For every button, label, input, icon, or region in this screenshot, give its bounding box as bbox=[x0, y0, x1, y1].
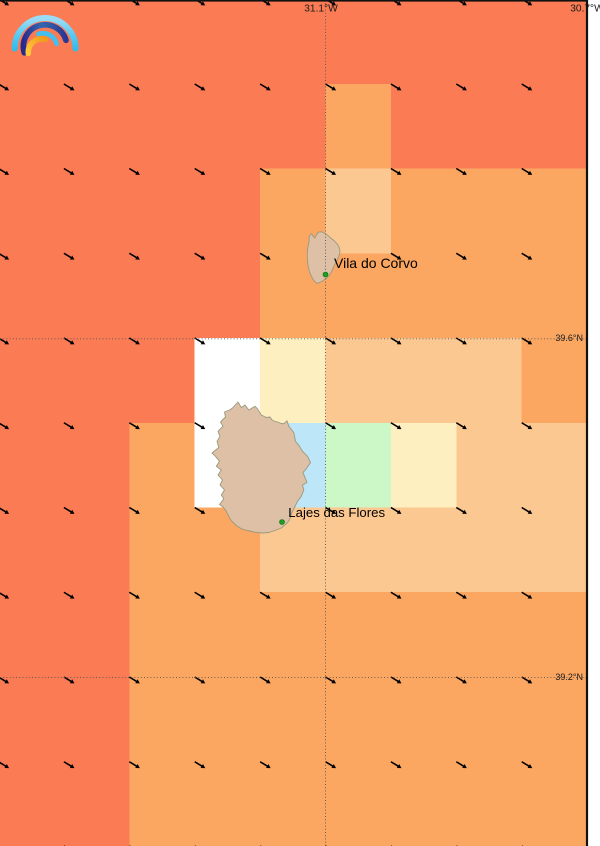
svg-text:Vila do Corvo: Vila do Corvo bbox=[334, 255, 418, 271]
svg-text:39.2°N: 39.2°N bbox=[555, 672, 583, 682]
svg-text:Lajes das Flores: Lajes das Flores bbox=[288, 505, 385, 520]
svg-text:31.1°W: 31.1°W bbox=[304, 3, 338, 14]
svg-text:30.7°W: 30.7°W bbox=[570, 3, 600, 14]
svg-text:39.6°N: 39.6°N bbox=[555, 333, 583, 343]
